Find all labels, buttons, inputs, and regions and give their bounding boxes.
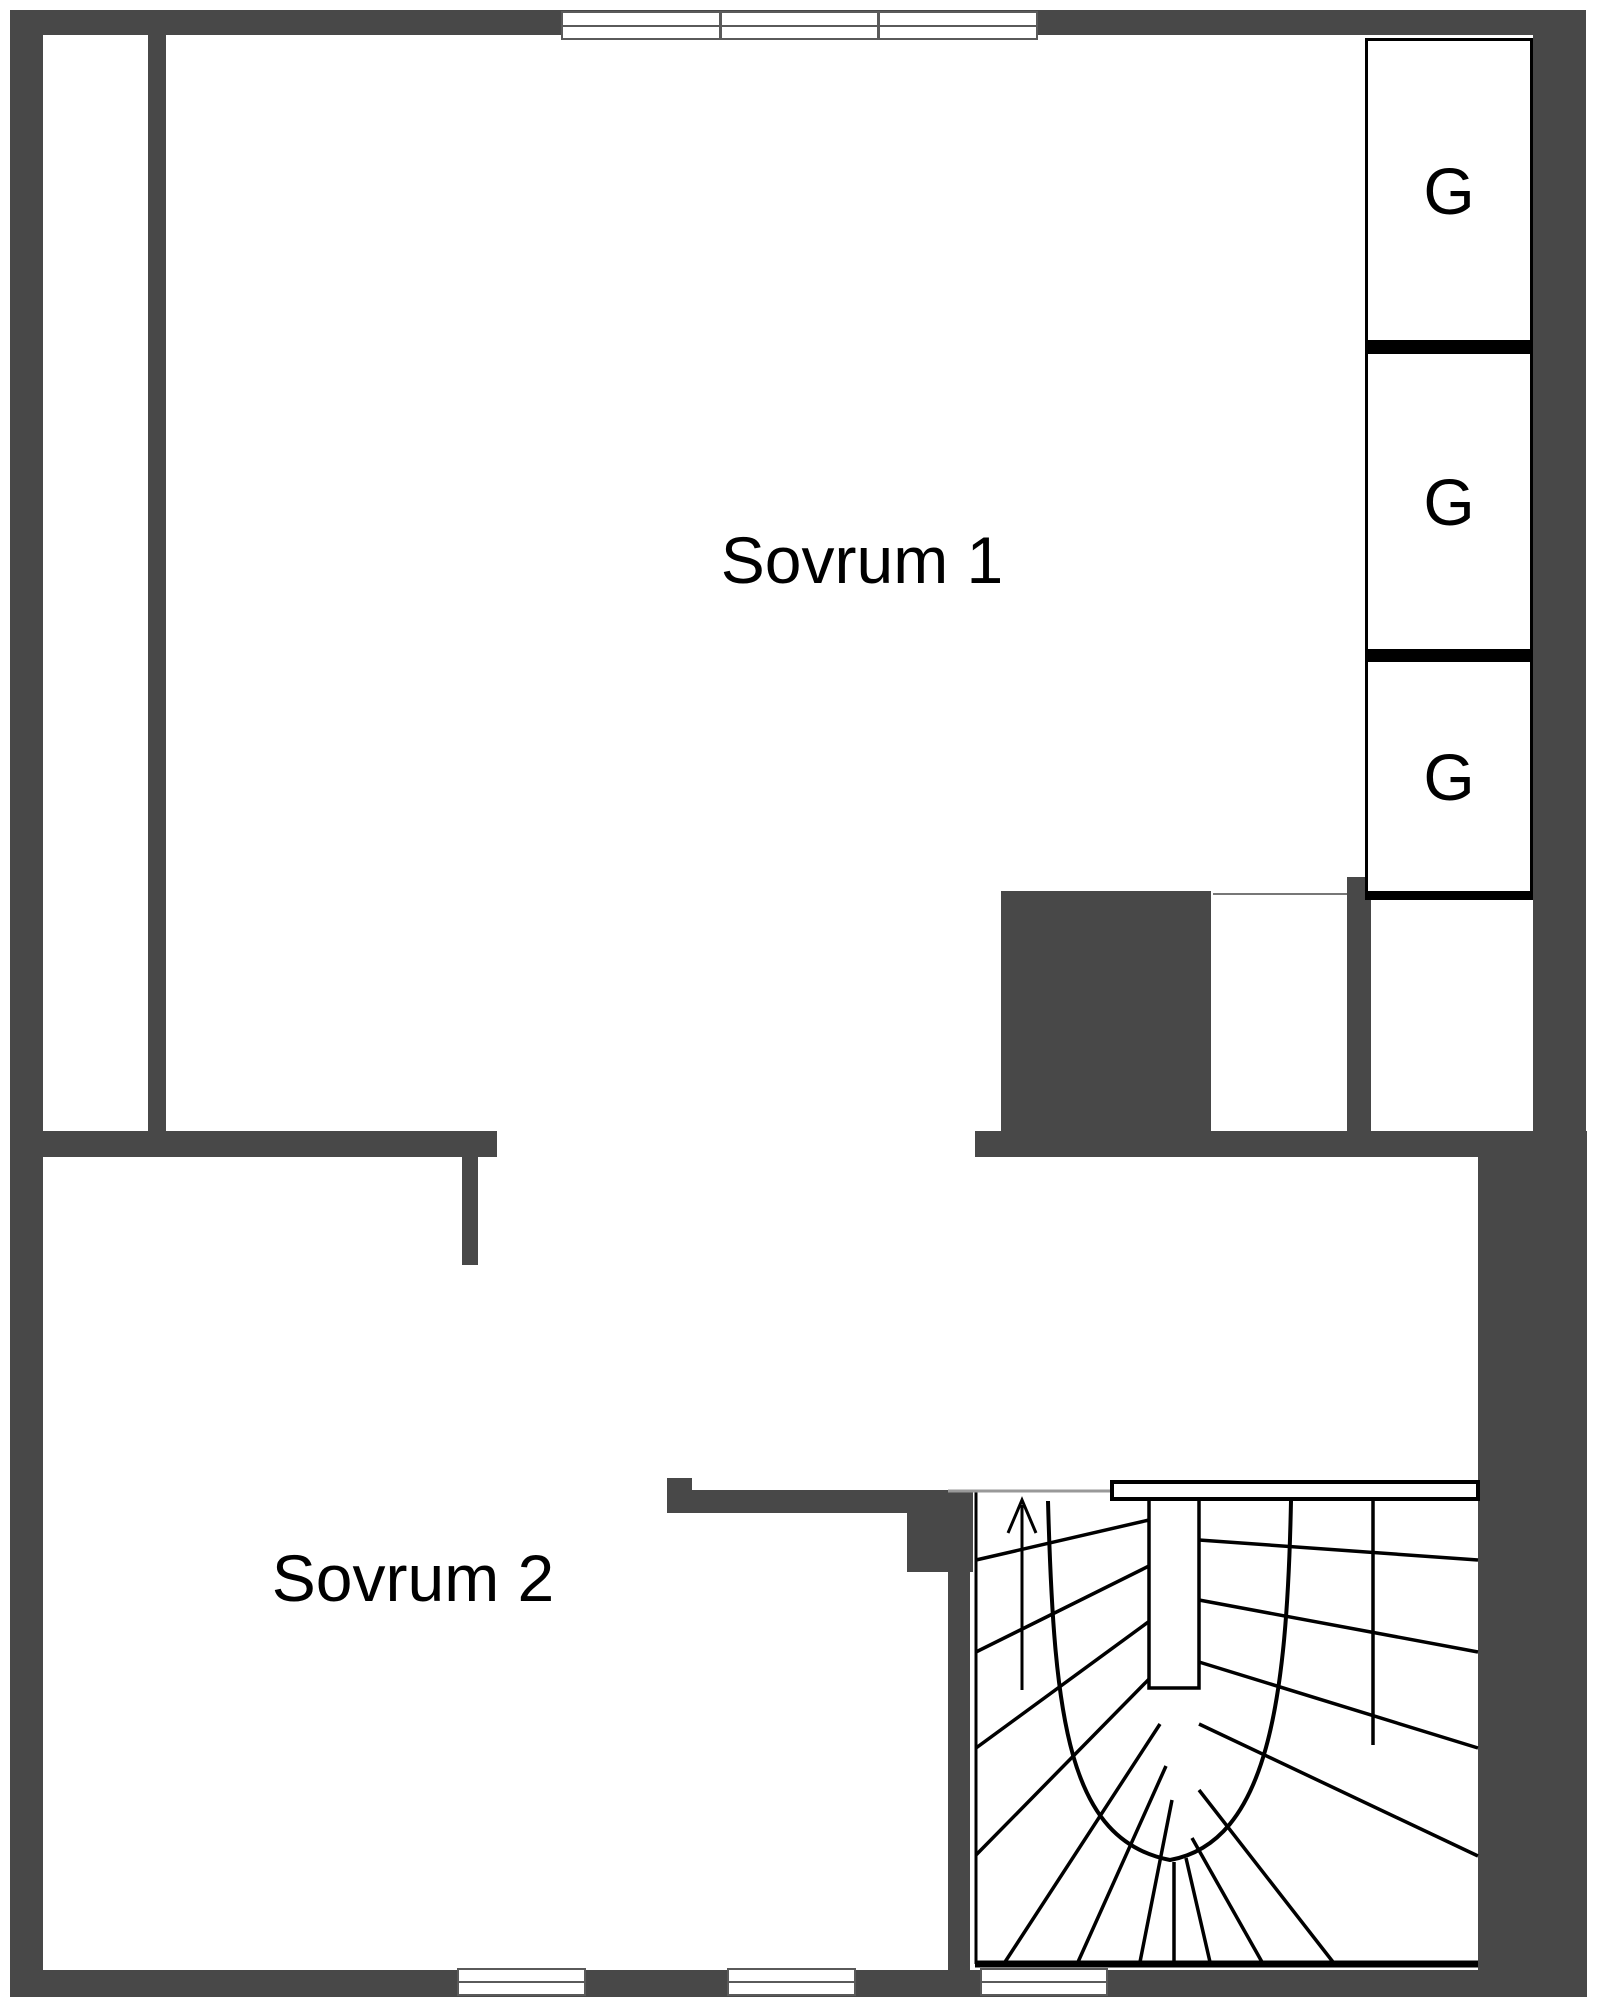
stair-handrail (1112, 1482, 1478, 1499)
floor-plan: G G G Sovrum 1 Sovrum 2 (0, 0, 1600, 2011)
stair-newel-void (1149, 1499, 1199, 1688)
stair-boundary (948, 1491, 1478, 1964)
staircase (0, 0, 1600, 2011)
stair-up-arrow-icon (1008, 1500, 1036, 1690)
